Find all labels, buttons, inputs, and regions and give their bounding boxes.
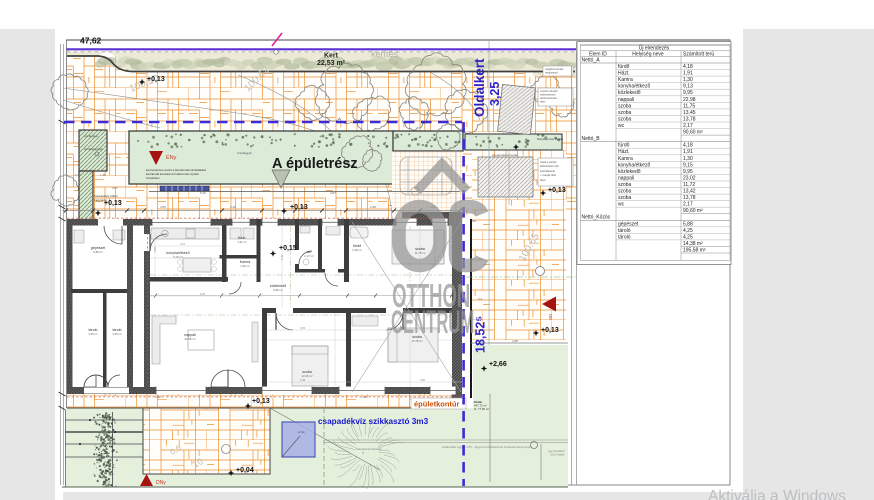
- svg-text:6,20: 6,20: [200, 292, 206, 296]
- svg-text:fürdő: fürdő: [618, 143, 630, 149]
- svg-text:Sokerékenéri kertárok: Sokerékenéri kertárok: [356, 447, 382, 451]
- svg-text:4,18: 4,18: [683, 143, 693, 149]
- svg-text:+0,13: +0,13: [548, 187, 566, 194]
- svg-text:3,48: 3,48: [300, 378, 306, 382]
- svg-text:22,98 m²: 22,98 m²: [184, 337, 195, 341]
- svg-text:br: 77,00 m²: br: 77,00 m²: [474, 407, 489, 411]
- svg-text:13,45 m²: 13,45 m²: [301, 374, 312, 378]
- svg-text:11,75: 11,75: [683, 103, 695, 109]
- svg-text:9,13: 9,13: [683, 84, 693, 90]
- svg-text:közlekedő: közlekedő: [618, 169, 641, 175]
- svg-text:gépészet: gépészet: [618, 221, 639, 227]
- svg-text:nappali: nappali: [618, 97, 634, 103]
- svg-text:wc: wc: [618, 123, 625, 129]
- svg-text:+2,66: +2,66: [489, 361, 507, 368]
- svg-text:+0,15: +0,15: [279, 245, 297, 252]
- svg-text:nappali: nappali: [618, 175, 634, 181]
- svg-text:Kert: Kert: [324, 53, 339, 60]
- svg-text:3.40: 3.40: [230, 205, 236, 209]
- svg-text:14,38 m²: 14,38 m²: [683, 241, 703, 247]
- svg-text:szoba: szoba: [618, 189, 632, 195]
- svg-text:csapadékvíz szikkasztó 3m3: csapadékvíz szikkasztó 3m3: [318, 417, 429, 426]
- svg-text:2,17 m²: 2,17 m²: [304, 254, 314, 258]
- svg-text:tartószerkezeti: tartószerkezeti: [540, 96, 557, 100]
- svg-text:4.65: 4.65: [160, 205, 166, 209]
- svg-text:Elem ID: Elem ID: [589, 51, 607, 57]
- svg-text:Nettó_Közös: Nettó_Közös: [582, 215, 611, 221]
- svg-text:4,25: 4,25: [683, 228, 693, 234]
- svg-text:90,60 m²: 90,60 m²: [683, 208, 703, 214]
- svg-text:szivárgóka: szivárgóka: [84, 134, 98, 138]
- svg-text:Kamra: Kamra: [618, 156, 633, 162]
- svg-text:a tetőn túlnyúló: a tetőn túlnyúló: [540, 89, 558, 93]
- svg-text:tereprendező munka: tereprendező munka: [492, 153, 518, 157]
- svg-text:22,53 m²: 22,53 m²: [317, 60, 346, 67]
- svg-text:13,45: 13,45: [683, 110, 696, 116]
- svg-text:+0,04: +0,04: [236, 467, 254, 474]
- svg-text:Határfalási ágya - OTF - Egysz: Határfalási ágya - OTF - Egyszerű Bejele…: [442, 445, 532, 449]
- svg-text:DNy: DNy: [156, 480, 166, 486]
- svg-text:Számított terü: Számított terü: [683, 51, 714, 57]
- svg-text:Aktiválja a Windows: Aktiválja a Windows: [708, 488, 846, 500]
- svg-text:3.07: 3.07: [112, 186, 118, 190]
- svg-text:4,25 m²: 4,25 m²: [112, 332, 122, 336]
- svg-text:+ cserjék ültet: + cserjék ültet: [540, 173, 556, 177]
- svg-text:4,10: 4,10: [180, 242, 186, 246]
- svg-text:szoba: szoba: [618, 116, 632, 122]
- svg-text:1,91: 1,91: [683, 149, 693, 155]
- svg-text:4.87: 4.87: [330, 191, 336, 195]
- svg-text:tároló: tároló: [618, 234, 631, 240]
- svg-text:1,91 m²: 1,91 m²: [237, 240, 247, 244]
- svg-text:csatá a párból: csatá a párból: [540, 160, 557, 164]
- svg-text:Antofággyik: Antofággyik: [237, 151, 252, 155]
- svg-text:3,05: 3,05: [300, 326, 306, 330]
- svg-text:A épületrész: A épületrész: [272, 156, 358, 172]
- svg-text:3.4: 3.4: [478, 297, 483, 301]
- svg-text:CENTRUM: CENTRUM: [391, 305, 474, 340]
- svg-text:4,18: 4,18: [683, 64, 693, 70]
- svg-text:szoba: szoba: [618, 103, 632, 109]
- svg-text:90,60 m²: 90,60 m²: [683, 130, 703, 136]
- svg-text:Oldalkert: Oldalkert: [472, 58, 487, 117]
- svg-text:1.38: 1.38: [100, 173, 106, 177]
- svg-text:+0,13: +0,13: [252, 398, 270, 405]
- svg-text:13,78: 13,78: [683, 195, 696, 201]
- svg-text:4,25 m²: 4,25 m²: [88, 332, 98, 336]
- svg-text:+0,13: +0,13: [290, 204, 308, 211]
- svg-text:9,95: 9,95: [683, 169, 693, 175]
- svg-text:4,25: 4,25: [683, 234, 693, 240]
- svg-text:22,98: 22,98: [683, 97, 696, 103]
- svg-text:DK: DK: [548, 314, 553, 320]
- svg-text:11,75 m²: 11,75 m²: [415, 251, 426, 255]
- svg-text:kerítés: kerítés: [371, 49, 399, 59]
- svg-text:+0,13: +0,13: [104, 200, 122, 207]
- svg-text:+0,13: +0,13: [147, 76, 165, 83]
- svg-text:2.10: 2.10: [75, 173, 81, 177]
- svg-text:wc: wc: [618, 202, 625, 208]
- svg-text:Új elrendezés: Új elrendezés: [639, 44, 670, 51]
- svg-text:2,80: 2,80: [153, 246, 157, 252]
- svg-text:konyha/étkező: konyha/étkező: [618, 84, 650, 90]
- svg-text:23,02: 23,02: [683, 175, 696, 181]
- svg-text:9,15: 9,15: [683, 162, 693, 168]
- svg-text:4.387: 4.387: [512, 339, 519, 343]
- svg-text:+0,13: +0,13: [541, 327, 559, 334]
- svg-text:5,88 m²: 5,88 m²: [93, 250, 103, 254]
- svg-text:Nettó_A: Nettó_A: [582, 58, 601, 64]
- svg-text:fasor: fasor: [540, 178, 546, 182]
- svg-text:5,88: 5,88: [683, 221, 693, 227]
- svg-text:18,52⁵: 18,52⁵: [474, 316, 488, 353]
- svg-text:Helyiség neve: Helyiség neve: [632, 51, 664, 57]
- svg-text:tetőszerkezet: tetőszerkezet: [540, 93, 556, 97]
- svg-text:3,25: 3,25: [488, 82, 502, 106]
- svg-text:Mélyalapozás vonala: Mélyalapozás vonala: [537, 137, 564, 141]
- svg-text:13,78: 13,78: [683, 116, 696, 122]
- svg-text:9,13 m²: 9,13 m²: [173, 255, 183, 259]
- svg-text:épületkontúr: épületkontúr: [414, 400, 459, 409]
- svg-text:3,90: 3,90: [420, 378, 426, 382]
- svg-text:szoba: szoba: [618, 182, 632, 188]
- svg-text:Nettó_B: Nettó_B: [582, 136, 601, 142]
- svg-text:Házt.: Házt.: [618, 71, 630, 77]
- svg-text:Kamra: Kamra: [618, 77, 633, 83]
- svg-text:betonlábazat: betonlábazat: [540, 169, 555, 173]
- svg-text:Házt.: Házt.: [618, 149, 630, 155]
- svg-text:100,0 felépft: 100,0 felépft: [550, 453, 565, 457]
- svg-text:2.98: 2.98: [370, 205, 376, 209]
- svg-text:konyha/étkező: konyha/étkező: [618, 162, 650, 168]
- svg-text:9,95: 9,95: [683, 90, 693, 96]
- svg-text:47,62: 47,62: [80, 36, 102, 46]
- svg-text:szoba: szoba: [618, 195, 632, 201]
- svg-text:2,17: 2,17: [683, 123, 693, 129]
- svg-text:fürdő: fürdő: [618, 64, 630, 70]
- svg-text:meglévő kerítés: meglévő kerítés: [545, 67, 564, 71]
- svg-text:rézsűkben: rézsűkben: [146, 176, 160, 180]
- svg-text:195,58 m²: 195,58 m²: [683, 248, 706, 254]
- svg-text:hordalékgyűjtő: hordalékgyűjtő: [84, 147, 103, 151]
- svg-text:1,91: 1,91: [683, 71, 693, 77]
- svg-text:ÉNy: ÉNy: [166, 154, 177, 161]
- svg-text:6.20: 6.20: [200, 191, 206, 195]
- svg-text:tároló: tároló: [618, 228, 631, 234]
- svg-text:egyi identifikár: egyi identifikár: [548, 449, 565, 453]
- svg-text:2,17: 2,17: [683, 202, 693, 208]
- svg-text:2,45: 2,45: [280, 254, 284, 260]
- svg-text:sz:3m: sz:3m: [298, 430, 305, 434]
- svg-text:1,30: 1,30: [683, 156, 693, 162]
- svg-text:közlekedő: közlekedő: [618, 90, 641, 96]
- svg-text:1,30 m²: 1,30 m²: [240, 264, 250, 268]
- svg-text:körbefutóan épít: körbefutóan épít: [540, 164, 559, 168]
- svg-text:13,42: 13,42: [683, 189, 696, 195]
- svg-text:9,95 m²: 9,95 m²: [273, 288, 283, 292]
- svg-text:11,72: 11,72: [683, 182, 695, 188]
- svg-text:4,18 m²: 4,18 m²: [352, 248, 362, 252]
- svg-text:1,30: 1,30: [683, 77, 693, 83]
- svg-text:elem: elem: [540, 100, 546, 104]
- svg-text:megmarad: megmarad: [545, 71, 558, 75]
- svg-text:szoba: szoba: [618, 110, 632, 116]
